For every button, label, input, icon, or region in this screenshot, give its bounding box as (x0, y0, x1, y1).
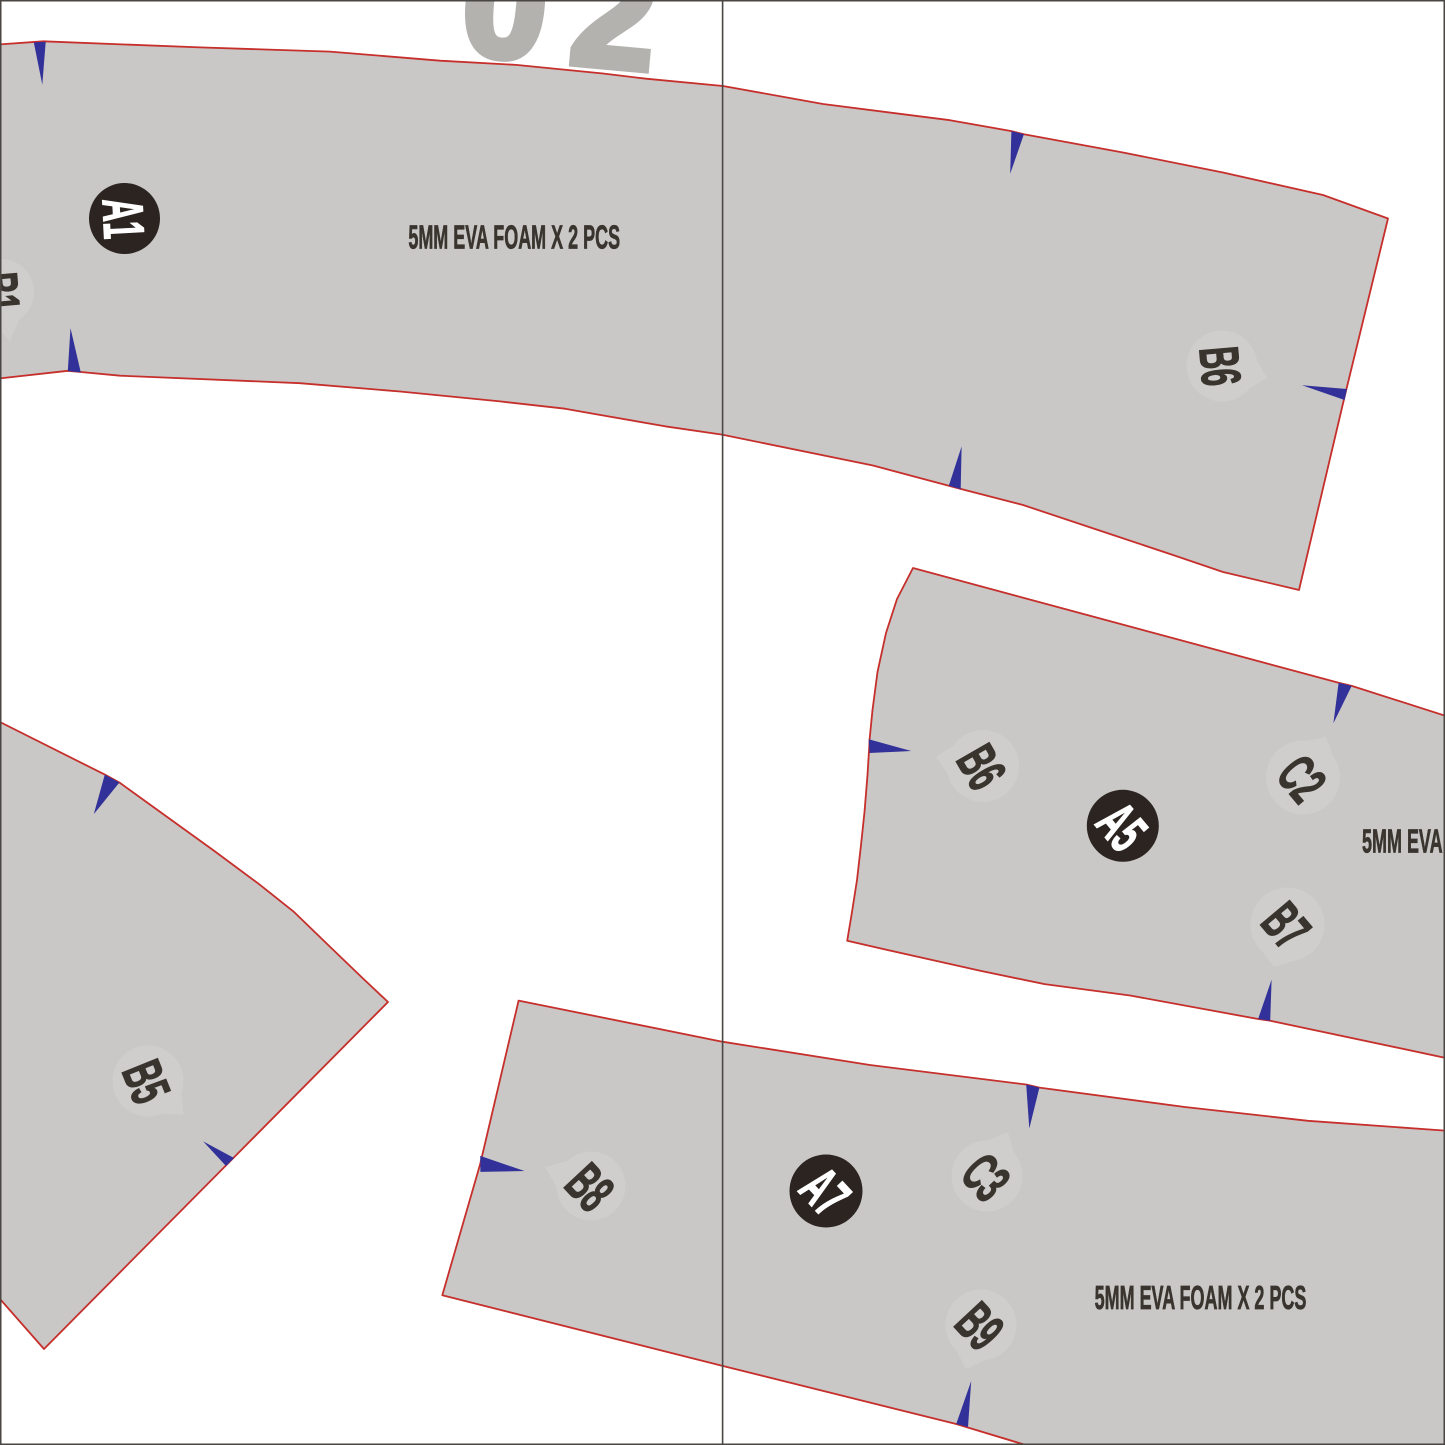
svg-text:5MM EVA FOAM X 2 PCS: 5MM EVA FOAM X 2 PCS (1362, 823, 1445, 860)
svg-text:B1: B1 (0, 270, 31, 314)
svg-text:5MM EVA FOAM X 2 PCS: 5MM EVA FOAM X 2 PCS (408, 219, 620, 256)
svg-text:5MM EVA FOAM X 2 PCS: 5MM EVA FOAM X 2 PCS (1095, 1279, 1307, 1316)
svg-text:A1: A1 (90, 197, 156, 241)
svg-text:B6: B6 (1187, 344, 1252, 388)
